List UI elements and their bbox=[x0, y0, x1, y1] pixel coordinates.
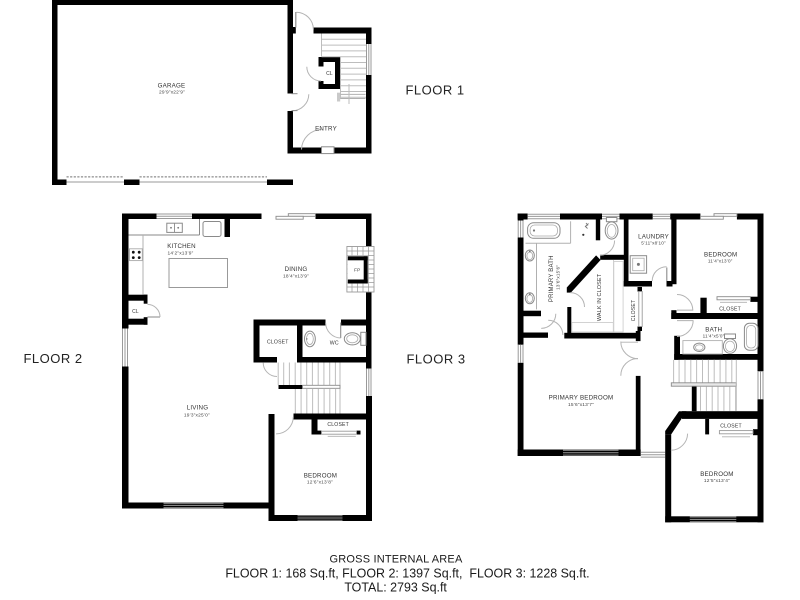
svg-text:CLOSET: CLOSET bbox=[267, 339, 289, 345]
svg-text:11’4”x5’0”: 11’4”x5’0” bbox=[703, 333, 725, 338]
svg-text:FLOOR 1: FLOOR 1 bbox=[405, 83, 464, 98]
svg-text:11’4”x13’0”: 11’4”x13’0” bbox=[708, 258, 733, 263]
svg-text:12’6”x13’8”: 12’6”x13’8” bbox=[307, 479, 333, 485]
svg-text:13’6”x15’6”: 13’6”x15’6” bbox=[556, 265, 561, 290]
svg-text:PRIMARY BATH: PRIMARY BATH bbox=[549, 255, 555, 302]
svg-text:18’4”x13’9”: 18’4”x13’9” bbox=[283, 273, 309, 279]
svg-text:FLOOR 1: 168 Sq.ft, FLOOR 2: 1: FLOOR 1: 168 Sq.ft, FLOOR 2: 1397 Sq.ft,… bbox=[225, 567, 589, 581]
svg-text:BEDROOM: BEDROOM bbox=[700, 471, 733, 478]
svg-text:CLOSET: CLOSET bbox=[327, 422, 349, 428]
svg-text:14’2”x13’9”: 14’2”x13’9” bbox=[168, 250, 194, 256]
svg-text:FP: FP bbox=[354, 268, 360, 273]
svg-text:29’9”x22’9”: 29’9”x22’9” bbox=[159, 89, 185, 95]
svg-text:5’11”x8’10”: 5’11”x8’10” bbox=[641, 240, 666, 245]
svg-text:19’3”x25’0”: 19’3”x25’0” bbox=[184, 412, 210, 418]
svg-text:GARAGE: GARAGE bbox=[158, 83, 186, 90]
svg-text:CLOSET: CLOSET bbox=[719, 307, 741, 313]
svg-text:WALK IN CLOSET: WALK IN CLOSET bbox=[597, 273, 603, 321]
svg-text:CLOSET: CLOSET bbox=[720, 423, 742, 429]
svg-text:FLOOR 3: FLOOR 3 bbox=[406, 351, 465, 366]
svg-text:15’6”x13’7”: 15’6”x13’7” bbox=[568, 402, 594, 408]
svg-text:CL: CL bbox=[326, 71, 333, 77]
svg-text:BEDROOM: BEDROOM bbox=[304, 472, 337, 479]
svg-text:DINING: DINING bbox=[285, 266, 308, 273]
svg-text:CLOSET: CLOSET bbox=[631, 300, 637, 322]
svg-text:KITCHEN: KITCHEN bbox=[167, 243, 196, 250]
svg-text:WC: WC bbox=[330, 341, 339, 347]
svg-text:PRIMARY BEDROOM: PRIMARY BEDROOM bbox=[549, 395, 614, 402]
svg-text:12’5”x13’4”: 12’5”x13’4” bbox=[704, 478, 730, 484]
svg-text:FLOOR 2: FLOOR 2 bbox=[23, 351, 82, 366]
svg-text:TOTAL: 2793 Sq.ft: TOTAL: 2793 Sq.ft bbox=[344, 581, 447, 595]
svg-text:LIVING: LIVING bbox=[187, 405, 209, 412]
svg-text:GROSS INTERNAL AREA: GROSS INTERNAL AREA bbox=[330, 554, 463, 566]
svg-text:CL: CL bbox=[132, 309, 139, 315]
svg-text:ENTRY: ENTRY bbox=[315, 126, 337, 133]
